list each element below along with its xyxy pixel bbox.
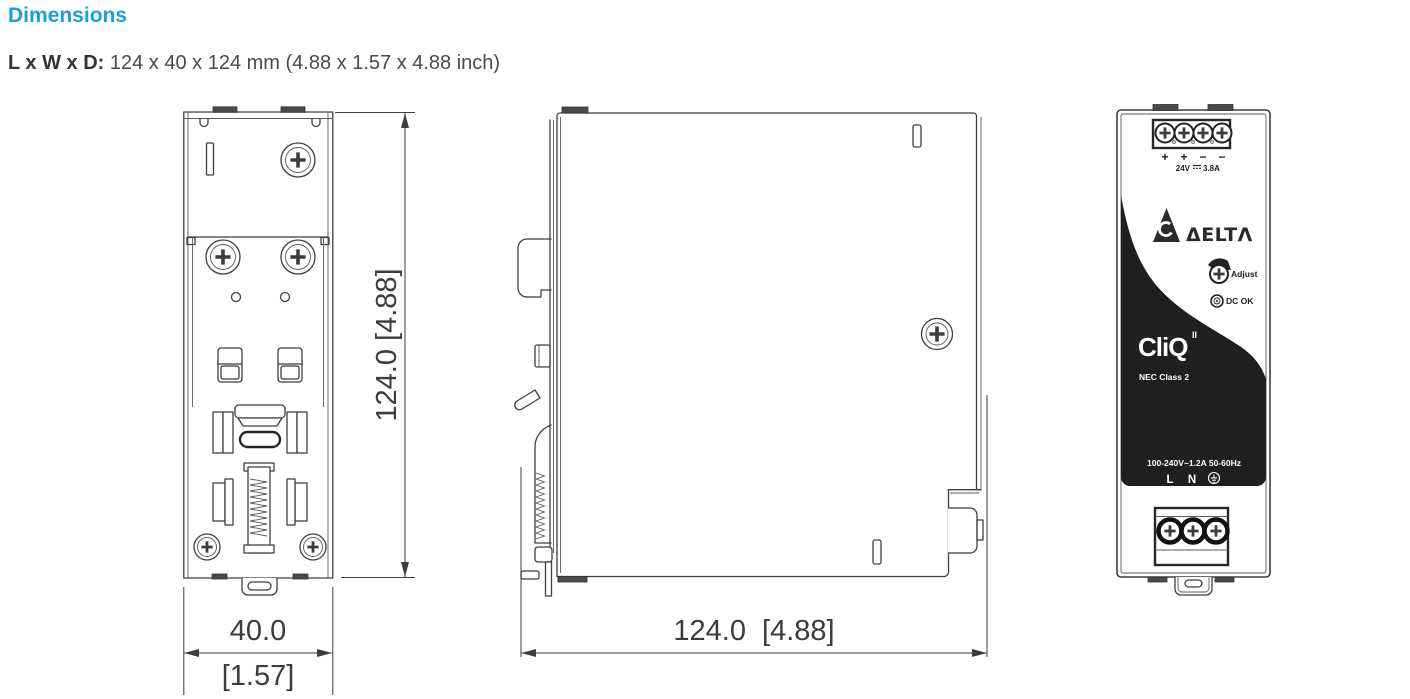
product-logo: CliQ	[1138, 332, 1188, 362]
latch-hook	[278, 348, 302, 382]
back-view-drawing: 124.0 [4.88] 40.0 [1.57]	[183, 95, 423, 699]
dimensions-label: L x W x D:	[8, 52, 104, 74]
nec-class-label: NEC Class 2	[1139, 372, 1189, 382]
side-screw	[922, 319, 953, 350]
side-slot	[873, 540, 881, 564]
brand-wordmark: ΔELTΛ	[1186, 224, 1253, 246]
front-terminal-profile	[948, 508, 977, 553]
output-voltage: 24V	[1176, 164, 1191, 173]
latch-hook	[218, 348, 242, 382]
width-dim-inch: [1.57]	[222, 660, 295, 692]
din-top-tab	[281, 107, 305, 113]
clip-screw	[300, 534, 326, 560]
height-dim-label: 124.0 [4.88]	[371, 268, 403, 421]
terminal-polarity: −	[1218, 150, 1225, 164]
input-screw	[1182, 520, 1205, 543]
depth-dimension: 124.0 [4.88]	[521, 395, 987, 657]
width-dimension: 40.0 [1.57]	[184, 587, 333, 695]
clip-release-lever	[515, 390, 540, 410]
plate-screw	[206, 240, 240, 274]
side-slot	[913, 125, 921, 147]
input-terminal-n: N	[1188, 474, 1196, 486]
depth-dim-label: 124.0 [4.88]	[673, 615, 834, 647]
clip-screw	[194, 534, 220, 560]
product-logo-sup: II	[1192, 330, 1197, 340]
vent-slot	[207, 143, 214, 175]
terminal-polarity: +	[1161, 150, 1168, 164]
clip-pin	[546, 562, 552, 596]
side-bottom-tab	[558, 577, 587, 583]
dc-ok-label: DC OK	[1226, 296, 1254, 306]
width-dim-mm: 40.0	[230, 615, 286, 647]
front-view-drawing: + + − − 24V 3.8A ΔELTΛ Adjust DC OK CliQ…	[1110, 95, 1285, 610]
input-terminal-l: L	[1166, 474, 1173, 486]
terminal-polarity: +	[1180, 150, 1187, 164]
input-screw	[1159, 520, 1182, 543]
clip-spring-side	[536, 473, 545, 539]
din-hook-profile	[518, 239, 551, 297]
dimensions-value: 124 x 40 x 124 mm (4.88 x 1.57 x 4.88 in…	[104, 52, 500, 74]
plate-screw	[281, 240, 315, 274]
adjust-pot-icon	[1210, 265, 1228, 283]
terminal-screw	[1213, 124, 1232, 143]
side-top-tab	[562, 107, 588, 113]
dc-ok-indicator: DC OK	[1211, 295, 1254, 307]
terminal-top-tab	[1208, 105, 1233, 111]
terminal-screw	[1156, 124, 1175, 143]
side-case-outline	[557, 107, 983, 582]
dimensions-summary: L x W x D: 124 x 40 x 124 mm (4.88 x 1.5…	[8, 52, 500, 75]
page-title: Dimensions	[8, 4, 127, 28]
terminal-top-tab	[1153, 105, 1178, 111]
front-bottom-clip	[1148, 577, 1234, 595]
din-top-tab	[213, 107, 237, 113]
input-screw	[1205, 520, 1228, 543]
terminal-screw	[1175, 124, 1194, 143]
terminal-polarity: −	[1199, 150, 1206, 164]
terminal-lip	[977, 520, 983, 540]
height-dimension: 124.0 [4.88]	[335, 113, 415, 578]
terminal-screw	[1194, 124, 1213, 143]
output-current: 3.8A	[1203, 164, 1220, 173]
input-rating-label: 100-240V~1.2A 50-60Hz	[1147, 458, 1241, 468]
side-view-drawing: 124.0 [4.88]	[505, 95, 1005, 680]
adjust-label: Adjust	[1231, 269, 1258, 279]
